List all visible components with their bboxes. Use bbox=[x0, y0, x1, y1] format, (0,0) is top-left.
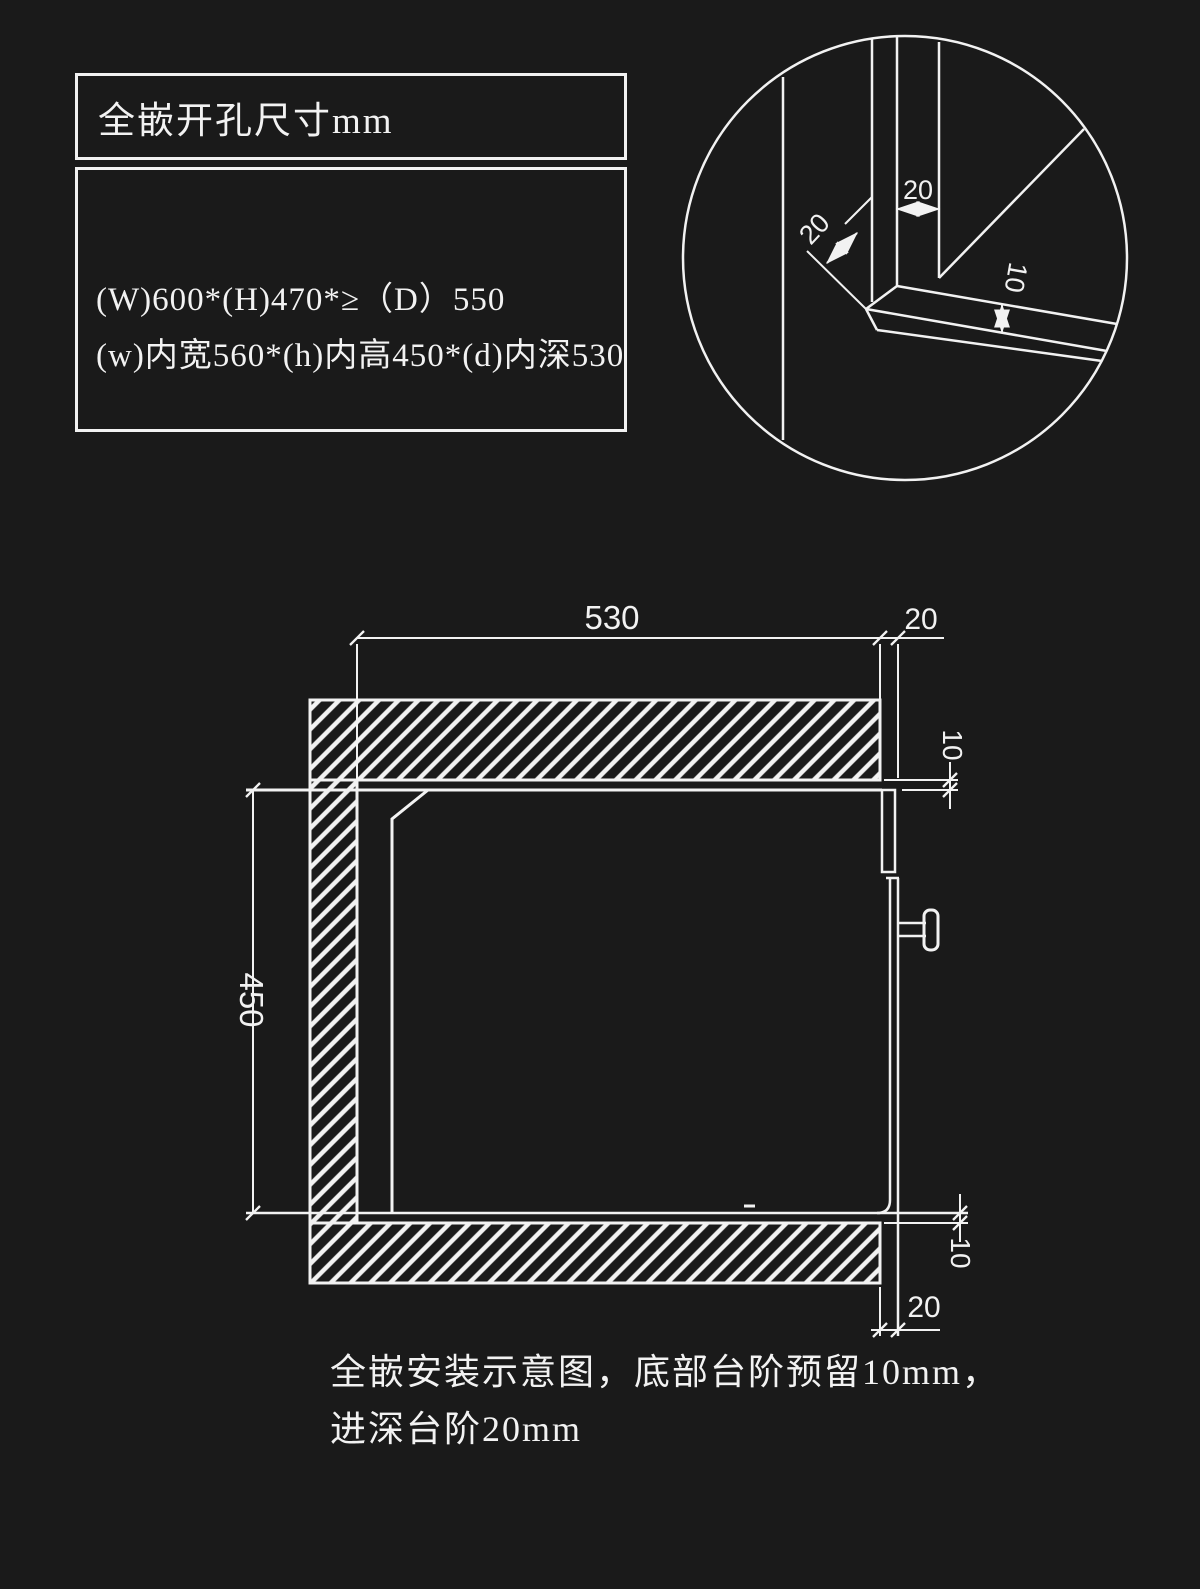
top-gap-dim-label: 10 bbox=[937, 729, 968, 760]
detail-front-step-dim-label: 20 bbox=[903, 175, 933, 205]
inner-depth-dim-label: 530 bbox=[584, 599, 639, 636]
oven-left-outline bbox=[392, 790, 428, 1213]
door-handle-knob bbox=[924, 910, 938, 950]
main-section-view bbox=[246, 700, 968, 1336]
detail-chamfer-dim-arrow bbox=[827, 233, 857, 263]
oven-front-flange bbox=[882, 790, 895, 872]
oven-door-inner-edge bbox=[877, 878, 890, 1213]
installation-diagram-page: 全嵌开孔尺寸mm (W)600*(H)470*≥（D）550 (w)内宽560*… bbox=[0, 0, 1200, 1589]
depth-step-dim-label: 20 bbox=[904, 603, 937, 636]
detail-chamfer-ext-line-inner bbox=[845, 197, 872, 224]
inner-height-dim-label: 450 bbox=[233, 972, 270, 1027]
corner-detail-view bbox=[683, 36, 1127, 480]
detail-chamfer-ext-line-outer bbox=[807, 251, 866, 309]
detail-corner-diagonal bbox=[939, 129, 1084, 278]
cabinet-bottom-wall bbox=[310, 1223, 880, 1283]
detail-panel-chamfer bbox=[866, 286, 897, 309]
bottom-gap-dim-label: 10 bbox=[945, 1237, 976, 1268]
cabinet-top-wall bbox=[310, 700, 880, 780]
caption: 全嵌安装示意图，底部台阶预留10mm， 进深台阶20mm bbox=[330, 1344, 1000, 1458]
detail-chamfer-dim-label: 20 bbox=[793, 208, 835, 250]
detail-panel-top-edge bbox=[897, 286, 1117, 324]
caption-line-1: 全嵌安装示意图，底部台阶预留10mm， bbox=[330, 1344, 1000, 1401]
detail-circle-outline bbox=[683, 36, 1127, 480]
detail-thickness-dim-label: 10 bbox=[998, 260, 1033, 295]
caption-line-2: 进深台阶20mm bbox=[330, 1401, 1000, 1458]
detail-panel-end-join bbox=[866, 309, 877, 330]
cabinet-left-wall bbox=[310, 780, 357, 1223]
bottom-step-dim-label: 20 bbox=[907, 1291, 940, 1324]
